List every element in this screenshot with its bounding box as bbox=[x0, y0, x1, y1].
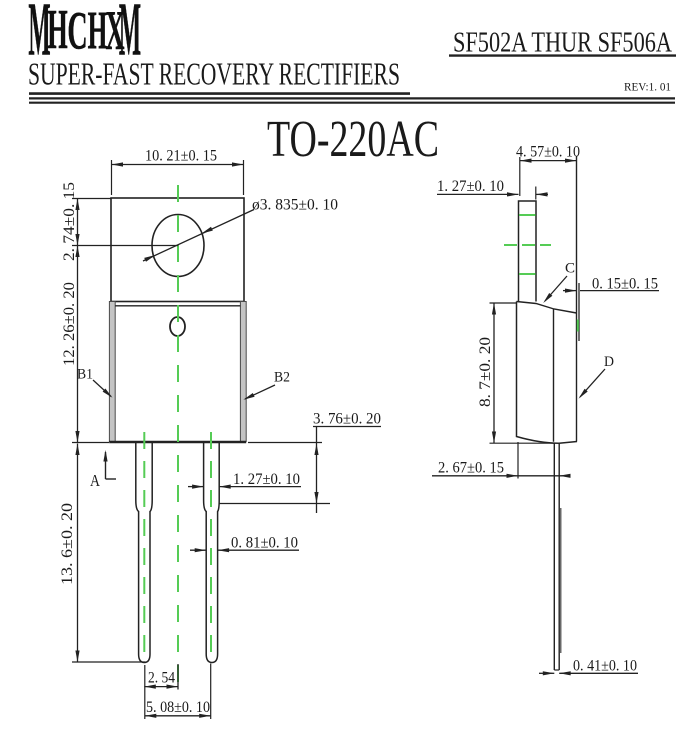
svg-text:0. 15±0. 15: 0. 15±0. 15 bbox=[592, 276, 658, 293]
svg-text:REV:1. 01: REV:1. 01 bbox=[624, 82, 671, 94]
svg-text:0. 81±0. 10: 0. 81±0. 10 bbox=[231, 535, 298, 552]
svg-text:H: H bbox=[88, 1, 108, 61]
svg-text:ø3. 835±0. 10: ø3. 835±0. 10 bbox=[252, 197, 338, 214]
svg-text:0. 41±0. 10: 0. 41±0. 10 bbox=[573, 658, 637, 675]
svg-text:8. 7±0. 20: 8. 7±0. 20 bbox=[477, 337, 494, 407]
svg-text:1. 27±0. 10: 1. 27±0. 10 bbox=[233, 471, 300, 488]
svg-text:2. 54: 2. 54 bbox=[148, 670, 175, 687]
svg-text:13. 6±0. 20: 13. 6±0. 20 bbox=[59, 503, 76, 585]
svg-text:5. 08±0. 10: 5. 08±0. 10 bbox=[146, 699, 210, 716]
svg-text:B2: B2 bbox=[274, 370, 290, 386]
svg-text:3. 76±0. 20: 3. 76±0. 20 bbox=[313, 411, 381, 428]
svg-text:TO-220AC: TO-220AC bbox=[267, 111, 439, 168]
svg-text:2. 74±0. 15: 2. 74±0. 15 bbox=[61, 182, 78, 261]
svg-text:D: D bbox=[604, 354, 614, 370]
svg-text:SUPER-FAST RECOVERY RECTIFIERS: SUPER-FAST RECOVERY RECTIFIERS bbox=[28, 57, 400, 92]
svg-text:C: C bbox=[565, 261, 575, 277]
svg-text:12. 26±0. 20: 12. 26±0. 20 bbox=[61, 282, 78, 366]
svg-text:C: C bbox=[67, 2, 87, 61]
svg-text:1. 27±0. 10: 1. 27±0. 10 bbox=[437, 178, 504, 195]
svg-text:A: A bbox=[90, 471, 100, 490]
svg-text:2. 67±0. 15: 2. 67±0. 15 bbox=[438, 460, 504, 477]
svg-text:SF502A THUR SF506A: SF502A THUR SF506A bbox=[453, 27, 672, 59]
svg-text:H: H bbox=[47, 0, 67, 61]
svg-text:B1: B1 bbox=[77, 367, 93, 383]
svg-text:4. 57±0. 10: 4. 57±0. 10 bbox=[516, 144, 580, 161]
svg-text:10. 21±0. 15: 10. 21±0. 15 bbox=[145, 148, 217, 165]
